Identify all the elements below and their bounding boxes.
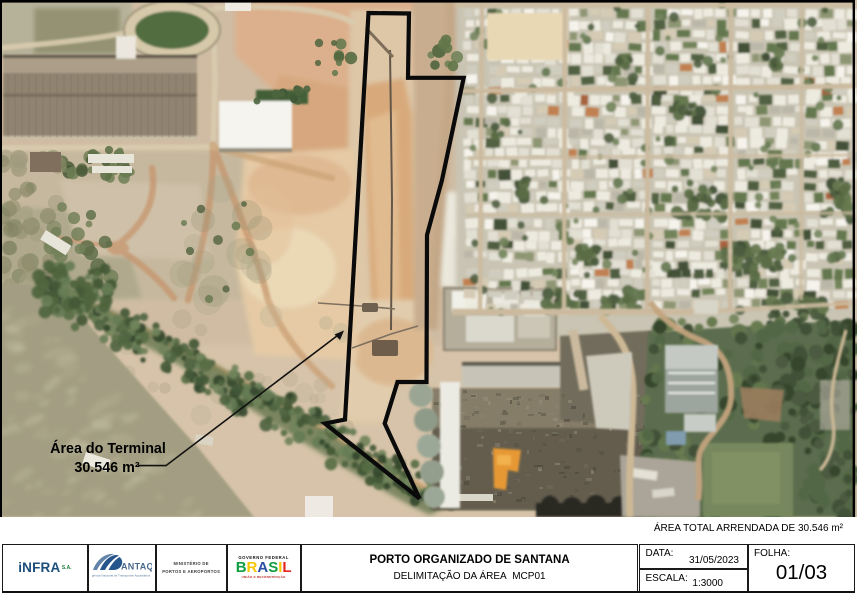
svg-text:30.546 m²: 30.546 m² xyxy=(74,460,139,476)
svg-text:ANTAQ: ANTAQ xyxy=(121,561,152,571)
svg-text:Área do Terminal: Área do Terminal xyxy=(50,440,166,457)
svg-text:Agência Nacional de Transporte: Agência Nacional de Transportes Aquaviár… xyxy=(92,573,151,577)
